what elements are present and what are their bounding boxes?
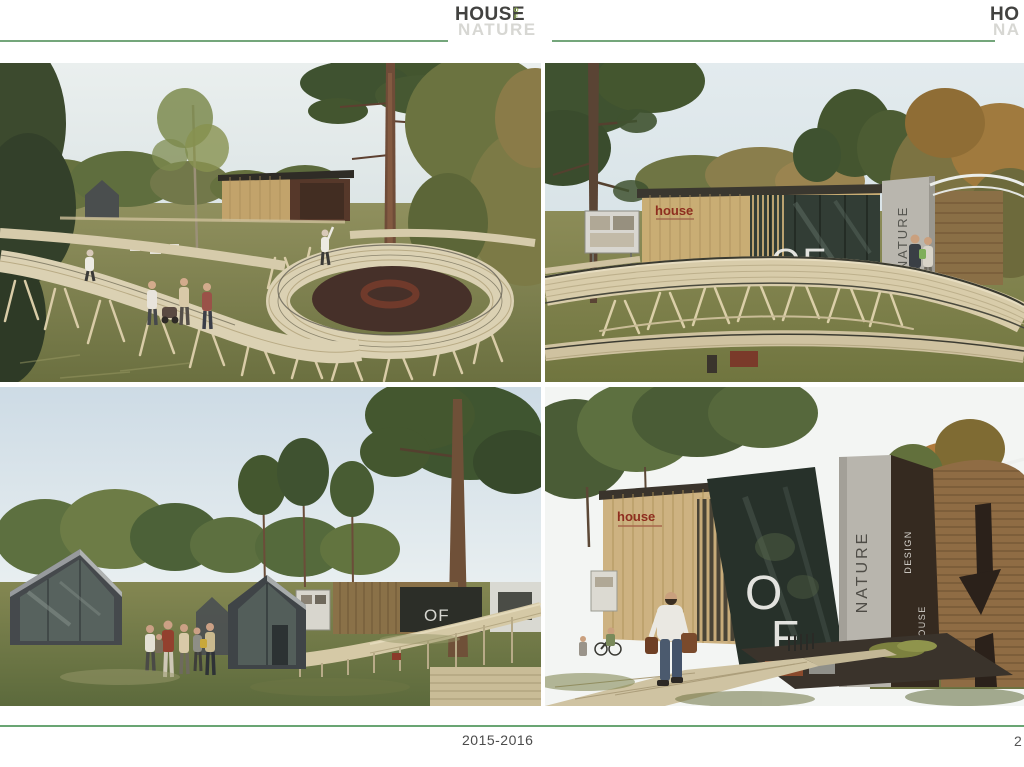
photo-cabins-meadow: OF xyxy=(0,387,541,706)
of-sign-small: OF xyxy=(424,606,450,625)
footer-years: 2015-2016 xyxy=(462,732,533,748)
house-of-nature-logo: HOUSE OF NATURE xyxy=(455,5,565,41)
nature-sign-vertical: NATURE xyxy=(854,531,871,614)
photo-pavilion-exterior: house OF NATURE xyxy=(545,63,1024,382)
design-sign-vertical: DESIGN xyxy=(903,530,913,574)
photo-spiral-walkway-park xyxy=(0,63,541,382)
logo-of: OF xyxy=(512,7,519,21)
pavilion xyxy=(218,170,354,221)
house-sign: house xyxy=(655,203,693,218)
dark-post xyxy=(707,355,717,373)
header-rule-right xyxy=(552,40,995,42)
page-number: 2 xyxy=(1014,733,1022,749)
header-rule-left xyxy=(0,40,448,42)
nature-sign-vertical: NATURE xyxy=(895,206,910,270)
partial-logo-next-slide: HO NA xyxy=(990,5,1024,41)
white-sign-board xyxy=(591,571,617,611)
house-sign: house xyxy=(617,509,655,524)
partial-logo-subtitle: NA xyxy=(993,21,1021,38)
photo-pavilion-entrance: house O F NATURE DESIGN HOUSE xyxy=(545,387,1024,706)
red-box xyxy=(730,351,758,367)
logo-subtitle: NATURE xyxy=(458,21,537,38)
presentation-slide: HOUSE OF NATURE HO NA xyxy=(0,0,1024,767)
footer-rule xyxy=(0,725,1024,727)
